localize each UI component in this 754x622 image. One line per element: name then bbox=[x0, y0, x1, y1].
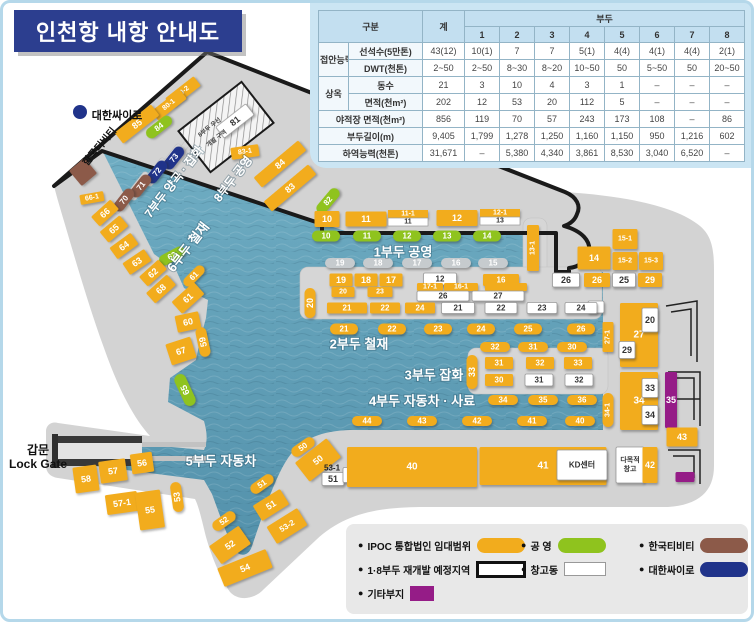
table-cell: 50 bbox=[605, 60, 640, 77]
pier-strip bbox=[468, 348, 608, 394]
port-table-body: 접안능력선석수(5만톤)43(12)10(1)775(1)4(4)4(1)4(4… bbox=[319, 43, 745, 162]
svg-text:43: 43 bbox=[677, 432, 687, 442]
berth-41: 41 bbox=[517, 416, 547, 426]
map-label: 3부두 잡화 bbox=[405, 368, 464, 383]
berth-42: 42 bbox=[643, 447, 658, 483]
svg-text:21: 21 bbox=[340, 325, 349, 334]
svg-text:21: 21 bbox=[454, 304, 463, 313]
row-label: 동수 bbox=[349, 77, 423, 94]
berth-10: 10 bbox=[312, 231, 340, 242]
daehan-silo-dot bbox=[73, 105, 87, 119]
berth-18: 18 bbox=[355, 274, 378, 287]
berth-13: 13 bbox=[433, 231, 461, 242]
table-row: 부두길이(m)9,4051,7991,2781,2501,1601,150950… bbox=[319, 128, 745, 145]
table-cell: 119 bbox=[465, 111, 500, 128]
berth-57: 57 bbox=[98, 458, 128, 484]
berth-58: 58 bbox=[72, 464, 99, 493]
svg-text:33: 33 bbox=[574, 359, 583, 368]
table-cell: 5,380 bbox=[500, 145, 535, 162]
pier-group-label: 부두 bbox=[465, 11, 745, 27]
svg-text:32: 32 bbox=[491, 343, 500, 352]
pier-col-7: 7 bbox=[675, 27, 710, 43]
svg-text:14: 14 bbox=[483, 232, 492, 241]
table-cell: 53 bbox=[500, 94, 535, 111]
svg-text:20: 20 bbox=[645, 315, 655, 325]
berth-17: 17 bbox=[380, 274, 403, 287]
legend-label: 창고동 bbox=[530, 562, 558, 577]
svg-text:27-1: 27-1 bbox=[605, 330, 612, 344]
table-cell: 31,671 bbox=[423, 145, 465, 162]
berth-27-1: 27-1 bbox=[603, 322, 614, 352]
svg-text:31: 31 bbox=[529, 343, 538, 352]
svg-text:51: 51 bbox=[328, 474, 338, 484]
berth-43: 43 bbox=[667, 428, 698, 447]
svg-text:22: 22 bbox=[497, 304, 506, 313]
row-label: 하역능력(천톤) bbox=[319, 145, 423, 162]
incheon-port-guide-page: { "title": "인천항 내항 안내도", "colors": { "ip… bbox=[0, 0, 754, 622]
svg-text:23: 23 bbox=[434, 325, 443, 334]
svg-text:55: 55 bbox=[144, 504, 155, 515]
map-label: Lock Gate bbox=[9, 457, 67, 471]
legend-label: IPOC 통합법인 임대범위 bbox=[367, 538, 471, 553]
table-row: 하역능력(천톤)31,671–5,3804,3403,8618,5303,040… bbox=[319, 145, 745, 162]
svg-text:11: 11 bbox=[361, 214, 371, 224]
berth-12-1: 12-113 bbox=[480, 209, 520, 225]
berth-23: 23 bbox=[527, 303, 557, 314]
berth-17: 17 bbox=[402, 258, 432, 268]
svg-text:26: 26 bbox=[561, 275, 571, 285]
berth-26: 26 bbox=[417, 291, 469, 301]
port-table-head: 구분 계 부두12345678 bbox=[319, 11, 745, 43]
port-statistics-panel: 구분 계 부두12345678 접안능력선석수(5만톤)43(12)10(1)7… bbox=[310, 3, 751, 168]
table-cell: 86 bbox=[710, 111, 745, 128]
row-label: DWT(천톤) bbox=[349, 60, 423, 77]
table-cell: 50 bbox=[675, 60, 710, 77]
pier-col-1: 1 bbox=[465, 27, 500, 43]
berth-26: 26 bbox=[584, 273, 610, 287]
berth-56: 56 bbox=[130, 452, 155, 475]
table-cell: 1,799 bbox=[465, 128, 500, 145]
berth-다목적: 다목적창고 bbox=[616, 447, 644, 483]
table-cell: – bbox=[640, 77, 675, 94]
pier-col-8: 8 bbox=[710, 27, 745, 43]
svg-text:15-1: 15-1 bbox=[618, 236, 632, 243]
svg-text:35: 35 bbox=[539, 396, 548, 405]
berth-11: 11 bbox=[353, 231, 381, 242]
berth-33: 33 bbox=[642, 379, 658, 398]
berth-30: 30 bbox=[557, 342, 587, 352]
table-cell: – bbox=[465, 145, 500, 162]
svg-text:17: 17 bbox=[413, 259, 422, 268]
svg-text:22: 22 bbox=[381, 304, 390, 313]
berth-35: 35 bbox=[528, 395, 558, 405]
table-cell: 4(4) bbox=[605, 43, 640, 60]
map-label: 5부두 자동차 bbox=[186, 454, 257, 469]
berth-21: 21 bbox=[330, 324, 358, 335]
svg-text:11-1: 11-1 bbox=[401, 211, 415, 218]
svg-text:20: 20 bbox=[305, 298, 315, 308]
berth-14: 14 bbox=[473, 231, 501, 242]
svg-text:17-1: 17-1 bbox=[423, 284, 437, 291]
legend-item: ●창고동 bbox=[521, 562, 639, 577]
svg-text:24: 24 bbox=[416, 304, 425, 313]
berth-34: 34 bbox=[488, 395, 518, 405]
table-cell: 602 bbox=[710, 128, 745, 145]
berth-12: 12 bbox=[437, 210, 478, 226]
table-cell: 8,530 bbox=[605, 145, 640, 162]
berth-31: 31 bbox=[525, 374, 553, 386]
legend-label: 기타부지 bbox=[367, 586, 404, 601]
berth-14: 14 bbox=[578, 247, 611, 270]
legend-item: ●한국티비티 bbox=[639, 538, 747, 553]
svg-text:19: 19 bbox=[336, 259, 345, 268]
svg-text:41: 41 bbox=[537, 461, 549, 472]
svg-text:31: 31 bbox=[495, 359, 504, 368]
table-cell: – bbox=[675, 77, 710, 94]
berth-11-1: 11-111 bbox=[388, 210, 428, 226]
table-cell: 4(1) bbox=[640, 43, 675, 60]
svg-text:43: 43 bbox=[418, 417, 427, 426]
table-cell: 243 bbox=[570, 111, 605, 128]
svg-text:40: 40 bbox=[576, 417, 585, 426]
table-cell: 7 bbox=[535, 43, 570, 60]
berth-40: 40 bbox=[347, 447, 477, 487]
svg-text:31: 31 bbox=[535, 376, 544, 385]
table-cell: 21 bbox=[423, 77, 465, 94]
svg-text:34: 34 bbox=[499, 396, 508, 405]
svg-text:18: 18 bbox=[361, 275, 371, 285]
table-cell: 1 bbox=[605, 77, 640, 94]
svg-text:23: 23 bbox=[538, 304, 547, 313]
berth-12: 12 bbox=[393, 231, 421, 242]
legend-label: 공 영 bbox=[530, 538, 551, 553]
row-group: 접안능력 bbox=[319, 43, 349, 77]
legend-item: ●1·8부두 재개발 예정지역 bbox=[358, 561, 521, 578]
table-cell: 1,250 bbox=[535, 128, 570, 145]
svg-text:24: 24 bbox=[477, 325, 486, 334]
svg-text:58: 58 bbox=[80, 473, 91, 484]
berth-29: 29 bbox=[619, 342, 635, 359]
berth-32: 32 bbox=[565, 374, 593, 386]
berth-30: 30 bbox=[485, 374, 513, 386]
legend-item: ●공 영 bbox=[521, 538, 639, 553]
svg-text:35: 35 bbox=[666, 395, 676, 405]
row-group: 상옥 bbox=[319, 77, 349, 111]
table-row: DWT(천톤)2~502~508~308~2010~50505~505020~5… bbox=[319, 60, 745, 77]
berth-area bbox=[676, 472, 695, 482]
svg-text:15-3: 15-3 bbox=[644, 258, 658, 265]
table-cell: 1,150 bbox=[605, 128, 640, 145]
table-cell: 856 bbox=[423, 111, 465, 128]
svg-text:15-2: 15-2 bbox=[618, 258, 632, 265]
legend-bullet: ● bbox=[358, 540, 363, 550]
berth-34-1: 34-1 bbox=[603, 393, 614, 427]
svg-text:26: 26 bbox=[577, 325, 586, 334]
table-cell: 202 bbox=[423, 94, 465, 111]
svg-text:다목적: 다목적 bbox=[620, 455, 639, 464]
berth-22: 22 bbox=[378, 324, 406, 335]
svg-text:44: 44 bbox=[363, 417, 372, 426]
svg-text:11: 11 bbox=[363, 232, 372, 241]
legend-swatch bbox=[564, 562, 606, 576]
legend-label: 1·8부두 재개발 예정지역 bbox=[367, 562, 470, 577]
table-cell: 57 bbox=[535, 111, 570, 128]
table-cell: – bbox=[710, 94, 745, 111]
svg-text:26: 26 bbox=[592, 275, 602, 285]
map-label: 갑문 bbox=[27, 443, 49, 457]
berth-35: 35 bbox=[665, 372, 677, 428]
table-cell: 5(1) bbox=[570, 43, 605, 60]
svg-text:59: 59 bbox=[197, 336, 209, 348]
table-cell: 108 bbox=[640, 111, 675, 128]
svg-text:12-1: 12-1 bbox=[493, 210, 507, 217]
table-cell: – bbox=[710, 77, 745, 94]
map-legend: ●IPOC 통합법인 임대범위●공 영●한국티비티●1·8부두 재개발 예정지역… bbox=[346, 524, 748, 614]
svg-text:60: 60 bbox=[182, 316, 194, 328]
legend-item: ●기타부지 bbox=[358, 586, 521, 601]
berth-43: 43 bbox=[407, 416, 437, 426]
map-label: 1부두 공영 bbox=[374, 245, 433, 260]
svg-text:29: 29 bbox=[622, 345, 632, 355]
berth-22: 22 bbox=[485, 303, 517, 314]
legend-bullet: ● bbox=[521, 540, 526, 550]
berth-11: 11 bbox=[346, 212, 387, 227]
legend-swatch bbox=[700, 562, 748, 577]
table-cell: 10~50 bbox=[570, 60, 605, 77]
table-cell: 6,520 bbox=[675, 145, 710, 162]
pier-col-3: 3 bbox=[535, 27, 570, 43]
berth-area bbox=[485, 283, 527, 291]
legend-bullet: ● bbox=[358, 564, 363, 574]
row-label: 선석수(5만톤) bbox=[349, 43, 423, 60]
legend-label: 대한싸이로 bbox=[648, 562, 694, 577]
legend-swatch bbox=[700, 538, 748, 553]
table-cell: 7 bbox=[500, 43, 535, 60]
berth-16: 16 bbox=[441, 258, 471, 268]
berth-24: 24 bbox=[467, 324, 495, 335]
table-cell: – bbox=[640, 94, 675, 111]
table-cell: 3,040 bbox=[640, 145, 675, 162]
legend-swatch bbox=[410, 586, 434, 601]
berth-15-2: 15-2 bbox=[613, 252, 638, 270]
svg-text:22: 22 bbox=[388, 325, 397, 334]
berth-18: 18 bbox=[363, 258, 393, 268]
berth-57-1: 57-1 bbox=[105, 491, 139, 515]
berth-10: 10 bbox=[315, 211, 340, 227]
page-title: 인천항 내항 안내도 bbox=[14, 10, 242, 52]
svg-text:25: 25 bbox=[619, 275, 629, 285]
svg-text:12: 12 bbox=[436, 275, 445, 284]
table-cell: 12 bbox=[465, 94, 500, 111]
svg-text:30: 30 bbox=[495, 376, 504, 385]
svg-text:23: 23 bbox=[376, 289, 384, 296]
svg-text:13-1: 13-1 bbox=[530, 241, 537, 255]
berth-51: 51 bbox=[322, 473, 344, 486]
table-row: 면적(천m²)2021253201125––– bbox=[319, 94, 745, 111]
svg-text:42: 42 bbox=[645, 460, 655, 470]
svg-text:40: 40 bbox=[406, 462, 418, 473]
legend-swatch bbox=[476, 561, 526, 578]
berth-23: 23 bbox=[368, 287, 393, 297]
legend-bullet: ● bbox=[639, 564, 644, 574]
legend-bullet: ● bbox=[358, 588, 363, 598]
map-label: 대한싸이로 bbox=[92, 108, 143, 122]
berth-55: 55 bbox=[135, 489, 165, 530]
svg-text:24: 24 bbox=[577, 304, 586, 313]
table-cell: 5 bbox=[605, 94, 640, 111]
table-cell: 173 bbox=[605, 111, 640, 128]
berth-40: 40 bbox=[565, 416, 595, 426]
svg-text:42: 42 bbox=[473, 417, 482, 426]
table-cell: 9,405 bbox=[423, 128, 465, 145]
table-cell: 4 bbox=[535, 77, 570, 94]
berth-25: 25 bbox=[613, 273, 636, 287]
berth-20: 20 bbox=[305, 288, 316, 318]
table-cell: 950 bbox=[640, 128, 675, 145]
col-total-label: 계 bbox=[423, 11, 465, 43]
berth-42: 42 bbox=[462, 416, 492, 426]
table-cell: 1,278 bbox=[500, 128, 535, 145]
berth-33: 33 bbox=[564, 357, 592, 369]
table-cell: 10 bbox=[500, 77, 535, 94]
berth-21: 21 bbox=[327, 303, 367, 314]
svg-text:21: 21 bbox=[343, 304, 352, 313]
legend-swatch bbox=[477, 538, 525, 553]
svg-text:11: 11 bbox=[404, 219, 412, 226]
svg-text:13: 13 bbox=[496, 218, 504, 225]
svg-text:29: 29 bbox=[645, 275, 655, 285]
legend-bullet: ● bbox=[639, 540, 644, 550]
table-cell: 3 bbox=[570, 77, 605, 94]
berth-26: 26 bbox=[553, 273, 580, 287]
table-cell: – bbox=[710, 145, 745, 162]
svg-text:19: 19 bbox=[336, 275, 346, 285]
berth-20: 20 bbox=[332, 287, 355, 297]
svg-text:15: 15 bbox=[489, 259, 498, 268]
svg-text:32: 32 bbox=[575, 376, 584, 385]
svg-text:18: 18 bbox=[374, 259, 383, 268]
map-label: 2부두 철재 bbox=[330, 337, 389, 352]
table-cell: 20~50 bbox=[710, 60, 745, 77]
berth-15-3: 15-3 bbox=[639, 252, 663, 270]
table-cell: 10(1) bbox=[465, 43, 500, 60]
berth-17-1: 17-1 bbox=[417, 283, 443, 291]
row-label: 야적장 면적(천m²) bbox=[319, 111, 423, 128]
berth-25: 25 bbox=[514, 324, 542, 335]
svg-text:13: 13 bbox=[443, 232, 452, 241]
berth-19: 19 bbox=[325, 258, 355, 268]
table-cell: 3 bbox=[465, 77, 500, 94]
berth-26: 26 bbox=[567, 324, 595, 335]
table-cell: 2~50 bbox=[465, 60, 500, 77]
table-cell: 4(4) bbox=[675, 43, 710, 60]
svg-text:34: 34 bbox=[645, 410, 655, 420]
svg-text:53: 53 bbox=[171, 491, 182, 502]
svg-text:56: 56 bbox=[136, 457, 147, 468]
table-cell: – bbox=[675, 111, 710, 128]
svg-text:57: 57 bbox=[107, 465, 118, 476]
svg-text:창고: 창고 bbox=[624, 464, 637, 473]
svg-text:20: 20 bbox=[339, 289, 347, 296]
berth-20: 20 bbox=[642, 308, 658, 332]
svg-text:17: 17 bbox=[386, 275, 396, 285]
legend-item: ●IPOC 통합법인 임대범위 bbox=[358, 538, 521, 553]
pier-col-5: 5 bbox=[605, 27, 640, 43]
svg-text:26: 26 bbox=[439, 292, 448, 301]
svg-text:33: 33 bbox=[467, 367, 477, 377]
table-cell: – bbox=[675, 94, 710, 111]
berth-19: 19 bbox=[330, 274, 353, 287]
svg-text:25: 25 bbox=[524, 325, 533, 334]
berth-31: 31 bbox=[485, 357, 513, 369]
svg-text:12: 12 bbox=[452, 213, 462, 223]
table-row: 야적장 면적(천m²)8561197057243173108–86 bbox=[319, 111, 745, 128]
table-cell: 8~20 bbox=[535, 60, 570, 77]
berth-34: 34 bbox=[642, 406, 658, 425]
berth-32: 32 bbox=[480, 342, 510, 352]
berth-22: 22 bbox=[370, 303, 400, 314]
berth-44: 44 bbox=[352, 416, 382, 426]
berth-33: 33 bbox=[467, 355, 478, 389]
table-cell: 70 bbox=[500, 111, 535, 128]
svg-text:10: 10 bbox=[322, 232, 331, 241]
svg-text:27: 27 bbox=[494, 292, 503, 301]
map-label: 4부두 자동차 · 사료 bbox=[369, 394, 475, 409]
svg-text:30: 30 bbox=[568, 343, 577, 352]
table-cell: 5~50 bbox=[640, 60, 675, 77]
table-cell: 1,160 bbox=[570, 128, 605, 145]
svg-text:10: 10 bbox=[322, 214, 332, 224]
pier-col-2: 2 bbox=[500, 27, 535, 43]
berth-27: 27 bbox=[472, 291, 524, 301]
berth-21: 21 bbox=[442, 303, 475, 314]
table-cell: 4,340 bbox=[535, 145, 570, 162]
row-label: 면적(천m²) bbox=[349, 94, 423, 111]
berth-16-1: 16-1 bbox=[444, 283, 478, 291]
svg-text:36: 36 bbox=[578, 396, 587, 405]
table-cell: 2(1) bbox=[710, 43, 745, 60]
svg-text:32: 32 bbox=[536, 359, 545, 368]
svg-text:12: 12 bbox=[403, 232, 412, 241]
svg-text:KD센터: KD센터 bbox=[569, 460, 595, 470]
berth-23: 23 bbox=[424, 324, 452, 335]
legend-label: 한국티비티 bbox=[648, 538, 694, 553]
berth-31: 31 bbox=[518, 342, 548, 352]
berth-24: 24 bbox=[565, 303, 597, 314]
table-cell: 20 bbox=[535, 94, 570, 111]
pier-col-6: 6 bbox=[640, 27, 675, 43]
table-row: 상옥동수21310431––– bbox=[319, 77, 745, 94]
legend-item: ●대한싸이로 bbox=[639, 562, 747, 577]
berth-13-1: 13-1 bbox=[527, 225, 539, 271]
berth-24: 24 bbox=[405, 303, 435, 314]
table-cell: 112 bbox=[570, 94, 605, 111]
berth-36: 36 bbox=[567, 395, 597, 405]
table-cell: 3,861 bbox=[570, 145, 605, 162]
legend-bullet: ● bbox=[521, 564, 526, 574]
svg-text:16: 16 bbox=[452, 259, 461, 268]
svg-text:41: 41 bbox=[528, 417, 537, 426]
svg-text:33: 33 bbox=[645, 383, 655, 393]
svg-text:16-1: 16-1 bbox=[454, 284, 468, 291]
table-cell: 2~50 bbox=[423, 60, 465, 77]
table-row: 접안능력선석수(5만톤)43(12)10(1)775(1)4(4)4(1)4(4… bbox=[319, 43, 745, 60]
table-cell: 8~30 bbox=[500, 60, 535, 77]
berth-29: 29 bbox=[638, 273, 662, 287]
svg-text:34-1: 34-1 bbox=[605, 403, 612, 417]
berth-15-1: 15-1 bbox=[613, 229, 638, 249]
table-cell: 43(12) bbox=[423, 43, 465, 60]
